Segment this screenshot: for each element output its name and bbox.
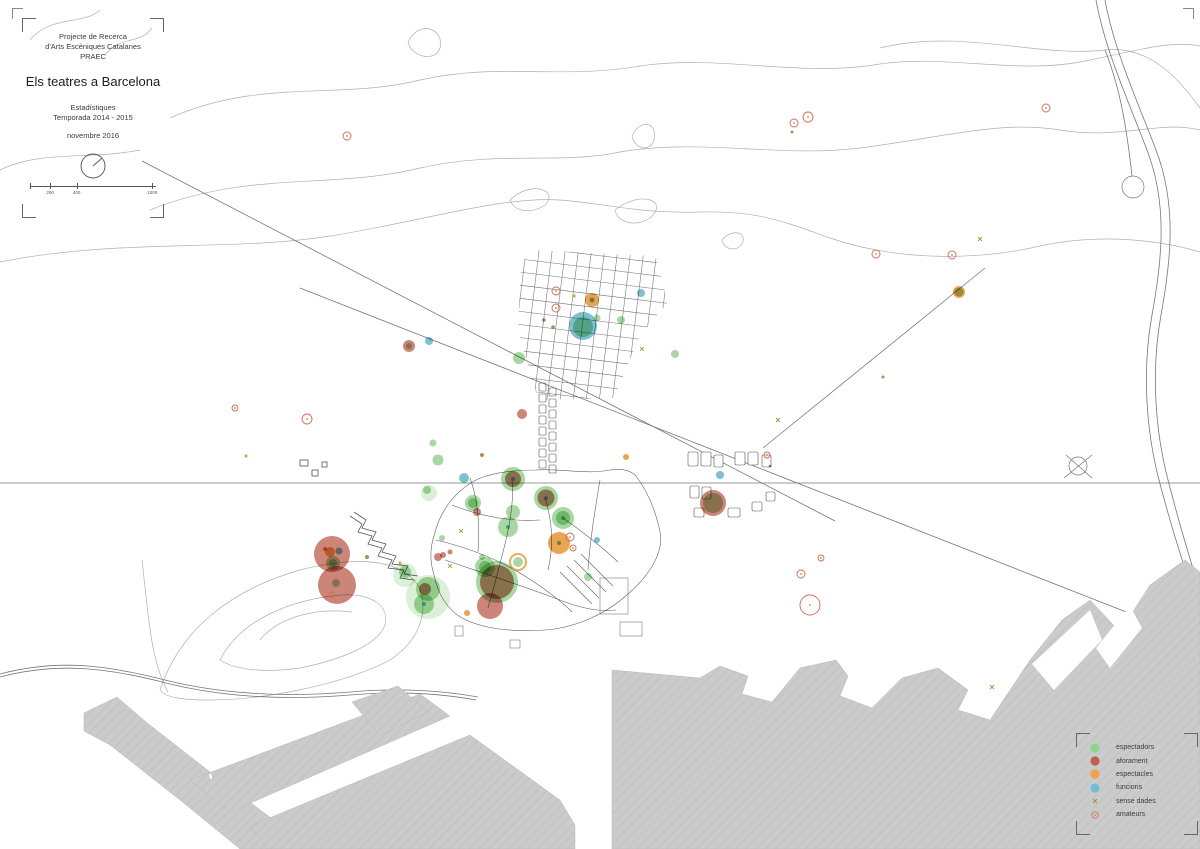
bubble-funcions bbox=[590, 298, 595, 303]
bubble-espectadors bbox=[506, 505, 520, 519]
bubble-funcions bbox=[425, 337, 433, 345]
legend-label-espectadors: espectadors bbox=[1108, 744, 1154, 751]
bubble-amateurs-center bbox=[555, 307, 557, 309]
scale-tick-label: 1000 bbox=[147, 190, 157, 195]
titleblock-corner bbox=[150, 204, 164, 218]
legend-label-sense: sense dades bbox=[1108, 798, 1156, 805]
scale-tick bbox=[50, 183, 51, 189]
bubble-funcions bbox=[637, 289, 645, 297]
legend-corner bbox=[1184, 821, 1198, 835]
titleblock-corner bbox=[150, 18, 164, 32]
subtitle-1: Estadístiques bbox=[22, 103, 164, 113]
title-block: Projecte de Recerca d'Arts Escèniques Ca… bbox=[22, 18, 164, 218]
bubble-amateurs-center bbox=[875, 253, 877, 255]
bubble-espectadors bbox=[329, 559, 337, 567]
bubble-sense_dot bbox=[882, 376, 885, 379]
bubble-espectadors bbox=[594, 315, 601, 322]
legend-label-espectacles: espectacles bbox=[1108, 771, 1153, 778]
scale-tick bbox=[152, 183, 153, 189]
bubble-sense_dot bbox=[791, 131, 794, 134]
legend-item-funcions: funcions bbox=[1082, 781, 1194, 794]
bubble-funcions bbox=[511, 477, 515, 481]
legend-items: espectadorsaforamentespectaclesfuncionss… bbox=[1082, 741, 1194, 821]
bubble-aforament bbox=[323, 547, 327, 551]
bubble-funcions bbox=[561, 516, 565, 520]
bubble-sense bbox=[990, 685, 994, 689]
titleblock-corner bbox=[22, 18, 36, 32]
bubble-sense bbox=[459, 529, 463, 533]
map-canvas: Projecte de Recerca d'Arts Escèniques Ca… bbox=[0, 0, 1200, 849]
bubble-sense bbox=[640, 347, 644, 351]
bubble-sense_dot bbox=[551, 325, 555, 329]
legend-corner bbox=[1076, 821, 1090, 835]
bubble-espectadors bbox=[406, 343, 412, 349]
legend-item-amateurs: amateurs bbox=[1082, 808, 1194, 821]
bubble-amateurs-center bbox=[807, 116, 809, 118]
bubble-espectadors bbox=[468, 498, 478, 508]
bubble-espectadors bbox=[433, 455, 444, 466]
bubble-amateurs-center bbox=[793, 122, 795, 124]
bubble-amateurs-center bbox=[766, 454, 768, 456]
legend-item-sense: sense dades bbox=[1082, 795, 1194, 808]
bubble-espectadors bbox=[332, 579, 340, 587]
bubble-sense_dot bbox=[542, 318, 546, 322]
frame-corner bbox=[1183, 8, 1194, 19]
bubble-aforament bbox=[419, 583, 431, 595]
bubble-sense bbox=[776, 418, 780, 422]
bubble-sense bbox=[448, 564, 452, 568]
legend-label-aforament: aforament bbox=[1108, 758, 1148, 765]
bubble-funcions bbox=[459, 473, 469, 483]
legend-item-espectacles: espectacles bbox=[1082, 768, 1194, 781]
bubble-espectadors bbox=[573, 317, 593, 337]
bubble-sense bbox=[245, 455, 248, 458]
scale-tick bbox=[30, 183, 31, 189]
bubble-sense_dot bbox=[769, 465, 772, 468]
funcions-legend-icon bbox=[1088, 782, 1102, 794]
barcelona-map bbox=[0, 0, 1200, 849]
bubble-amateurs-center bbox=[555, 290, 557, 292]
bubble-sense bbox=[978, 237, 982, 241]
aforament-legend-icon bbox=[1088, 755, 1102, 767]
scale-bar: 2004001000 bbox=[30, 183, 156, 197]
bubble-espectadors bbox=[399, 566, 411, 578]
bubble-espectadors bbox=[479, 554, 485, 560]
bubble-aforament bbox=[448, 550, 453, 555]
bubble-amateurs-center bbox=[809, 604, 811, 606]
bubble-espectadors bbox=[439, 535, 445, 541]
bubble-espectadors bbox=[430, 440, 437, 447]
bubble-espectacles bbox=[623, 454, 629, 460]
bubble-espectadors bbox=[671, 350, 679, 358]
bubble-espectadors bbox=[513, 557, 523, 567]
bubble-amateurs-center bbox=[569, 536, 571, 538]
bubble-espectadors bbox=[617, 316, 625, 324]
project-line-1: Projecte de Recerca bbox=[22, 32, 164, 42]
bubble-aforament bbox=[440, 552, 446, 558]
legend-label-funcions: funcions bbox=[1108, 784, 1142, 791]
bubble-amateurs-center bbox=[306, 418, 308, 420]
bubble-espectadors bbox=[955, 288, 964, 297]
bubble-amateurs-center bbox=[331, 594, 333, 596]
bubble-amateurs-center bbox=[951, 254, 953, 256]
map-bubbles bbox=[232, 104, 1050, 689]
bubble-funcions bbox=[422, 602, 426, 606]
bubble-amateurs-center bbox=[572, 547, 574, 549]
bubble-funcions bbox=[336, 548, 343, 555]
subtitle-2: Temporada 2014 - 2015 bbox=[22, 113, 164, 123]
titleblock-corner bbox=[22, 204, 36, 218]
bubble-aforament bbox=[473, 508, 481, 516]
project-line-3: PRAEC bbox=[22, 52, 164, 62]
scale-tick bbox=[77, 183, 78, 189]
bubble-amateurs-center bbox=[800, 573, 802, 575]
bubble-espectadors bbox=[479, 561, 491, 573]
map-title: Els teatres a Barcelona bbox=[22, 74, 164, 89]
bubble-aforament bbox=[477, 593, 503, 619]
bubble-amateurs-center bbox=[234, 407, 236, 409]
bubble-espectadors bbox=[703, 493, 723, 513]
map-legend: espectadorsaforamentespectaclesfuncionss… bbox=[1076, 733, 1198, 835]
bubble-amateurs-center bbox=[1045, 107, 1047, 109]
bubble-funcions bbox=[716, 471, 724, 479]
map-date: novembre 2016 bbox=[22, 131, 164, 141]
bubble-funcions bbox=[594, 537, 600, 543]
bubble-sense_dot bbox=[480, 453, 484, 457]
sense-legend-icon bbox=[1088, 795, 1102, 807]
bubble-amateurs-center bbox=[820, 557, 822, 559]
harbour-shapes bbox=[84, 560, 1200, 849]
bubble-aforament bbox=[517, 409, 527, 419]
bubble-sense bbox=[399, 562, 402, 565]
bubble-amateurs-center bbox=[346, 135, 348, 137]
scale-bar-line bbox=[30, 186, 156, 187]
bubble-funcions bbox=[506, 525, 510, 529]
bubble-funcions bbox=[544, 496, 548, 500]
legend-item-espectadors: espectadors bbox=[1082, 741, 1194, 754]
scale-tick-label: 200 bbox=[46, 190, 54, 195]
north-compass-icon bbox=[78, 151, 108, 181]
amateurs-legend-icon bbox=[1088, 809, 1102, 821]
bubble-espectadors bbox=[513, 352, 525, 364]
project-line-2: d'Arts Escèniques Catalanes bbox=[22, 42, 164, 52]
legend-label-amateurs: amateurs bbox=[1108, 811, 1145, 818]
espectadors-legend-icon bbox=[1088, 742, 1102, 754]
bubble-espectacles bbox=[464, 610, 470, 616]
bubble-sense_dot bbox=[365, 555, 369, 559]
frame-corner bbox=[12, 8, 23, 19]
espectacles-legend-icon bbox=[1088, 768, 1102, 780]
bubble-funcions bbox=[557, 541, 561, 545]
bubble-espectadors bbox=[423, 486, 431, 494]
legend-item-aforament: aforament bbox=[1082, 754, 1194, 767]
scale-tick-label: 400 bbox=[73, 190, 81, 195]
bubble-espectadors bbox=[584, 573, 592, 581]
